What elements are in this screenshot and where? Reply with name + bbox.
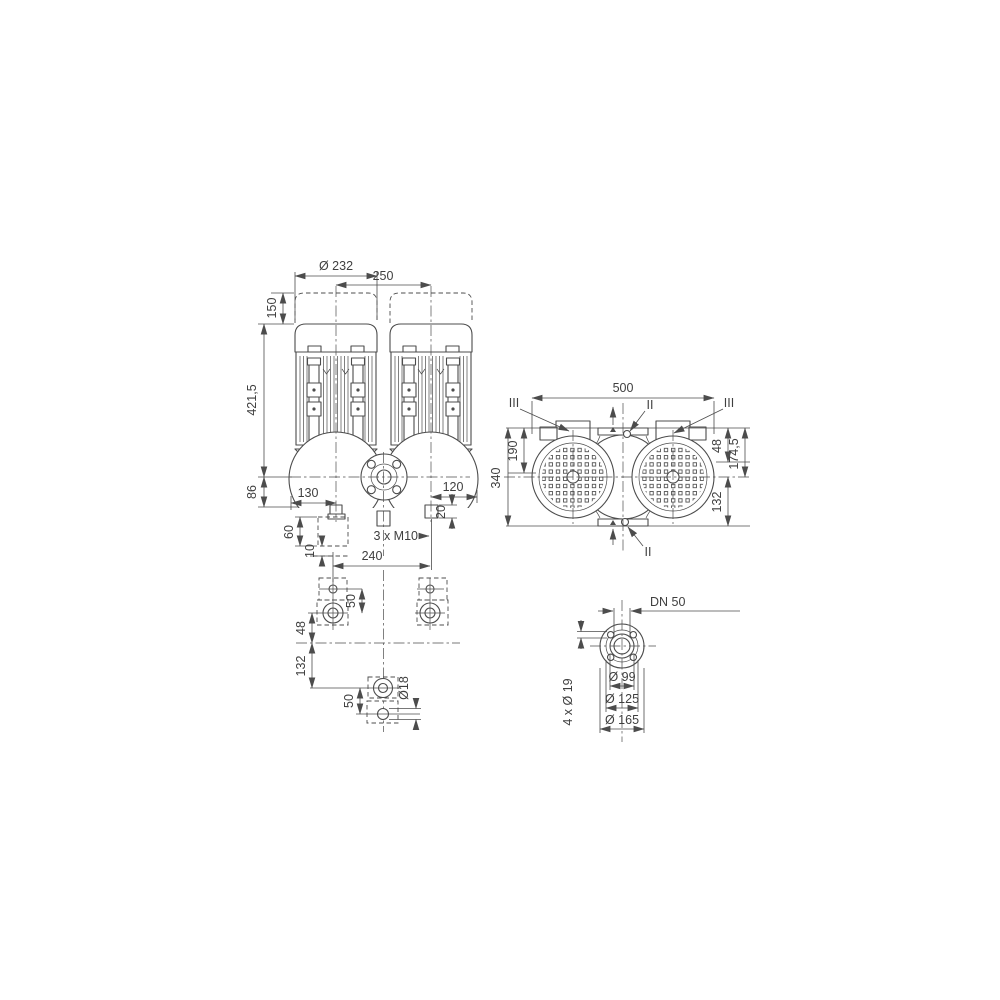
- section-label-top: II: [647, 398, 654, 412]
- dim-outer-diameter: Ø 165: [605, 713, 639, 727]
- dim-hub-diameter: Ø 99: [608, 670, 635, 684]
- foundation-plan-view: 240 50 48 1: [294, 549, 460, 730]
- dim-face-to-shoulder: 48: [710, 439, 724, 453]
- front-elevation-view: Ø 232 250 150 421,5 86 130 120 60 10: [245, 259, 485, 732]
- pump-dimensional-drawing: Ø 232 250 150 421,5 86 130 120 60 10: [0, 0, 1000, 1000]
- flange-detail-view: DN 50 4 x Ø 19 Ø 99 Ø 125 Ø 165: [561, 595, 740, 742]
- dim-pad-shim: 10: [303, 544, 317, 558]
- dim-motor-diameter: Ø 232: [319, 259, 353, 273]
- dim-overall-width: 500: [613, 381, 634, 395]
- dim-axis-spacing: 250: [373, 269, 394, 283]
- dim-rear-hole-offset: 50: [342, 694, 356, 708]
- dim-plugs: 3 x M10: [374, 529, 419, 543]
- dim-nominal-bore: DN 50: [650, 595, 685, 609]
- dim-axis-to-rear: 132: [710, 492, 724, 513]
- dim-axis-to-rear-hole: 132: [294, 656, 308, 677]
- section-label-bottom: II: [645, 545, 652, 559]
- dim-pad-height: 60: [282, 525, 296, 539]
- foundation-dimensions: 50 48 132 50 Ø18: [294, 589, 421, 730]
- dim-removal-clearance: 150: [265, 298, 279, 319]
- dim-axis-to-base: 86: [245, 485, 259, 499]
- flange-dimensions: DN 50 4 x Ø 19 Ø 99 Ø 125 Ø 165: [561, 595, 740, 733]
- dim-bolt-holes: 4 x Ø 19: [561, 678, 575, 725]
- dim-motor-height: 421,5: [245, 384, 259, 415]
- dim-plug-depth: 20: [434, 505, 448, 519]
- dim-hole-diameter: Ø18: [397, 676, 411, 700]
- plan-view: 500 190 340 48 174,5 132 III III II II: [489, 381, 750, 559]
- dim-hole-spacing: 240: [362, 549, 383, 563]
- dim-front-hole-offset: 50: [344, 594, 358, 608]
- section-label-left: III: [509, 396, 519, 410]
- dim-face-to-motor-axis: 174,5: [727, 438, 741, 469]
- foundation-pad-top-right: [415, 578, 448, 630]
- dim-bolt-circle-diameter: Ø 125: [605, 692, 639, 706]
- section-label-right: III: [724, 396, 734, 410]
- dim-base-right: 120: [443, 480, 464, 494]
- dim-axis-to-front-row: 48: [294, 621, 308, 635]
- dim-base-left: 130: [298, 486, 319, 500]
- dim-overall-depth: 340: [489, 468, 503, 489]
